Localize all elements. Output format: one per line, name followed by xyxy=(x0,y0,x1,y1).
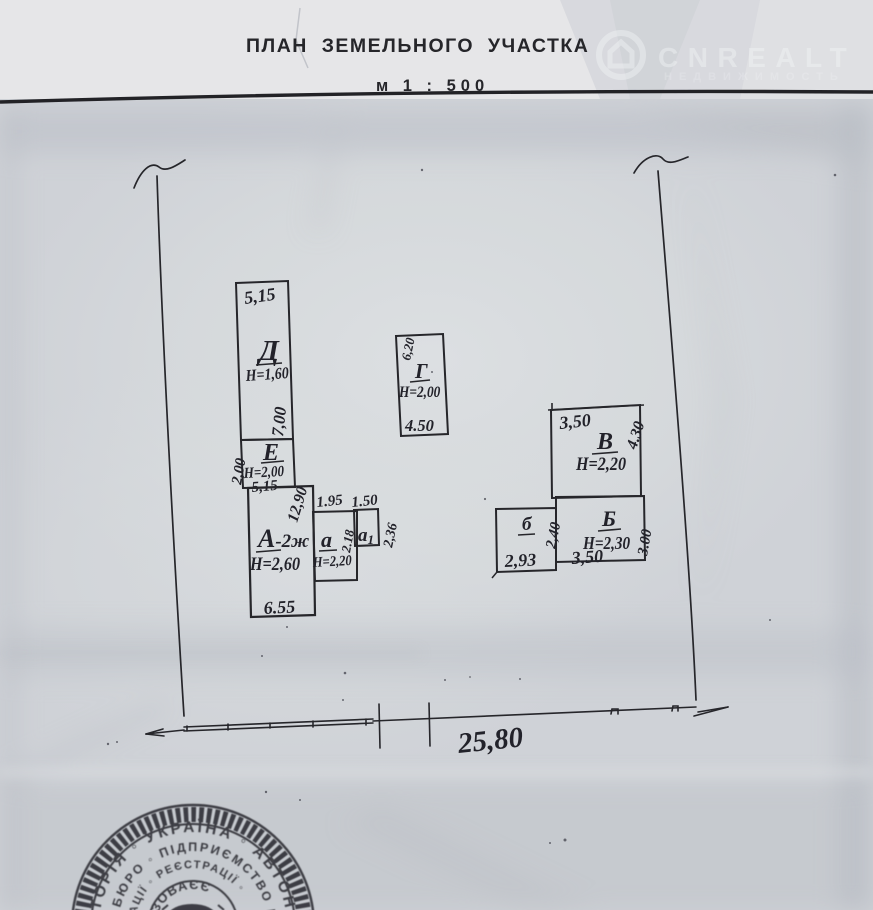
svg-text:6.55: 6.55 xyxy=(263,596,296,618)
svg-text:2,93: 2,93 xyxy=(503,549,537,571)
svg-text:б: б xyxy=(522,514,533,535)
svg-text:4.50: 4.50 xyxy=(404,416,434,435)
svg-text:3,50: 3,50 xyxy=(557,410,591,433)
svg-text:Н=2,60: Н=2,60 xyxy=(249,553,300,574)
svg-text:Б: Б xyxy=(601,506,616,531)
svg-text:В: В xyxy=(596,429,613,455)
svg-text:ПЛАН ЗЕМЕЛЬНОГО УЧАСТКА: ПЛАН ЗЕМЕЛЬНОГО УЧАСТКА xyxy=(246,35,589,57)
svg-text:Н=2,20: Н=2,20 xyxy=(575,453,626,474)
svg-text:а: а xyxy=(321,527,332,552)
svg-text:7,00: 7,00 xyxy=(268,405,290,437)
svg-text:НЕДВИЖИМОСТЬ: НЕДВИЖИМОСТЬ xyxy=(664,71,845,83)
svg-text:CNREALT: CNREALT xyxy=(658,42,856,73)
svg-text:Д: Д xyxy=(256,335,280,367)
svg-text:Г: Г xyxy=(414,359,428,383)
svg-text:1.95: 1.95 xyxy=(316,492,344,511)
svg-text:3,50: 3,50 xyxy=(570,546,604,568)
svg-text:Н=2,00: Н=2,00 xyxy=(398,384,441,401)
svg-text:1.50: 1.50 xyxy=(351,492,379,511)
svg-text:Н=2,20: Н=2,20 xyxy=(311,552,352,570)
svg-text:Н=1,60: Н=1,60 xyxy=(244,364,290,385)
